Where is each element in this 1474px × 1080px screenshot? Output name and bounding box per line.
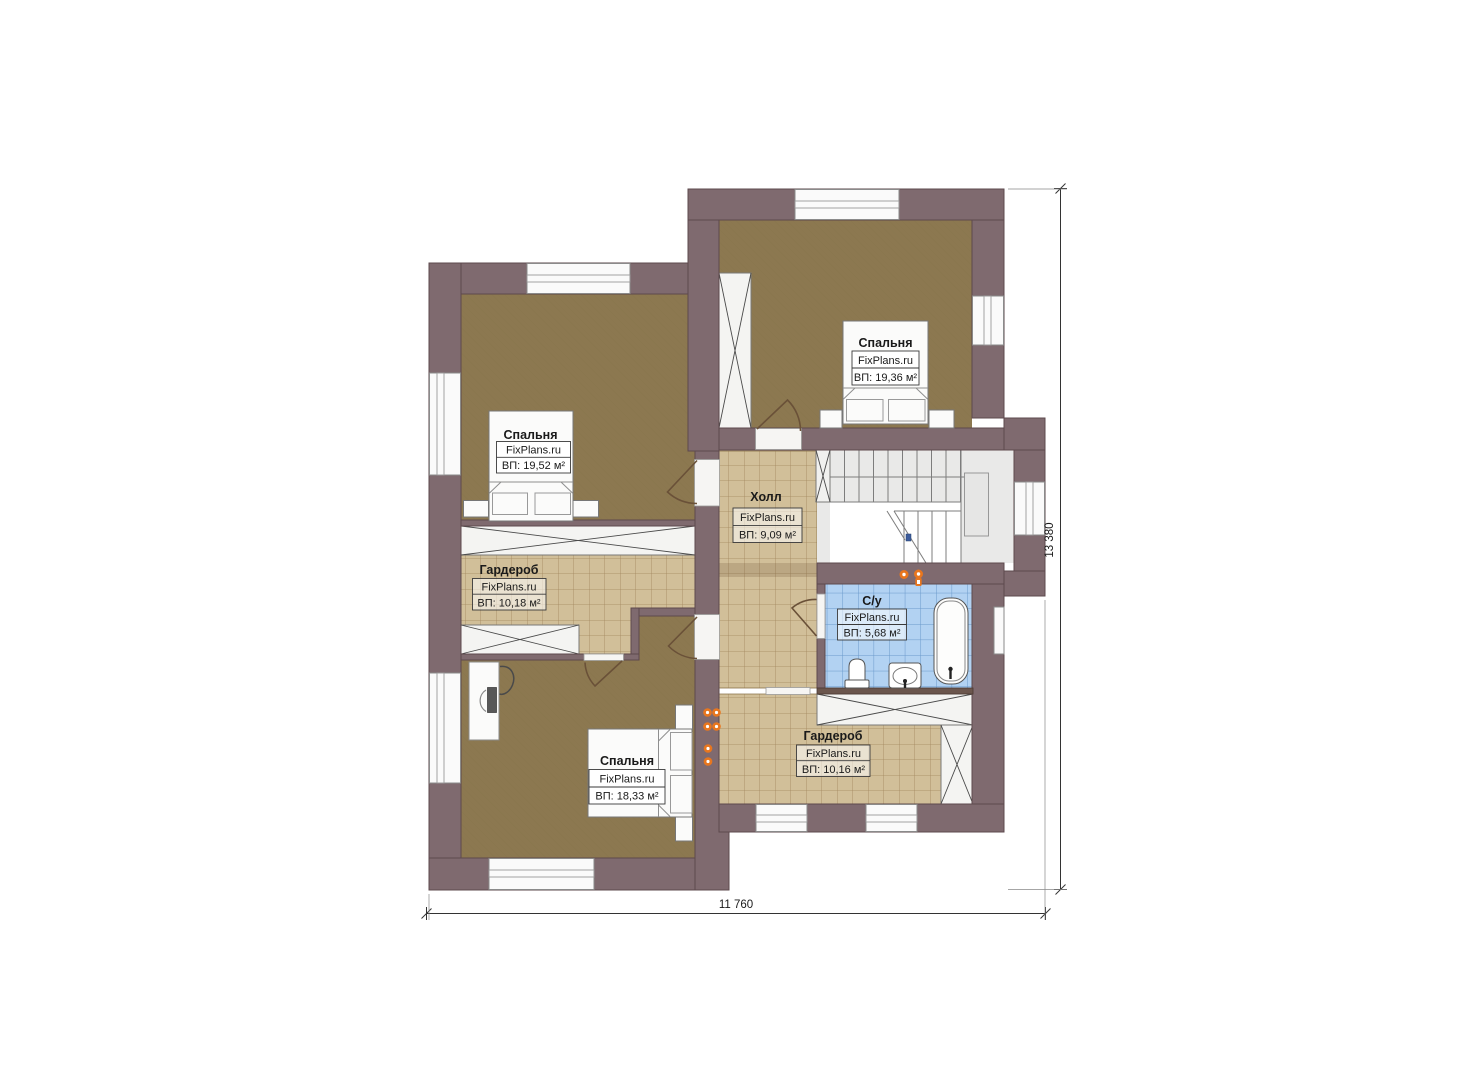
svg-text:FixPlans.ru: FixPlans.ru	[858, 355, 913, 367]
svg-text:FixPlans.ru: FixPlans.ru	[844, 612, 899, 624]
svg-text:Гардероб: Гардероб	[479, 563, 538, 577]
svg-text:ВП: 10,16 м²: ВП: 10,16 м²	[802, 764, 866, 776]
svg-text:ВП: 18,33 м²: ВП: 18,33 м²	[595, 791, 659, 803]
svg-text:ВП: 10,18 м²: ВП: 10,18 м²	[477, 598, 541, 610]
svg-text:13 380: 13 380	[1044, 522, 1056, 557]
svg-text:FixPlans.ru: FixPlans.ru	[806, 748, 861, 760]
svg-text:ВП: 9,09 м²: ВП: 9,09 м²	[739, 530, 796, 542]
svg-text:FixPlans.ru: FixPlans.ru	[740, 512, 795, 524]
svg-text:С/у: С/у	[862, 594, 882, 608]
svg-text:FixPlans.ru: FixPlans.ru	[599, 774, 654, 786]
svg-text:11 760: 11 760	[719, 899, 753, 911]
svg-text:ВП: 19,52 м²: ВП: 19,52 м²	[502, 460, 566, 472]
svg-text:Гардероб: Гардероб	[803, 729, 862, 743]
svg-text:Спальня: Спальня	[600, 754, 654, 768]
svg-text:FixPlans.ru: FixPlans.ru	[506, 445, 561, 457]
svg-text:ВП: 5,68 м²: ВП: 5,68 м²	[843, 628, 900, 640]
svg-text:FixPlans.ru: FixPlans.ru	[481, 582, 536, 594]
svg-text:Спальня: Спальня	[504, 428, 558, 442]
svg-text:Спальня: Спальня	[859, 336, 913, 350]
svg-text:ВП: 19,36 м²: ВП: 19,36 м²	[854, 372, 918, 384]
svg-text:Холл: Холл	[750, 490, 781, 504]
